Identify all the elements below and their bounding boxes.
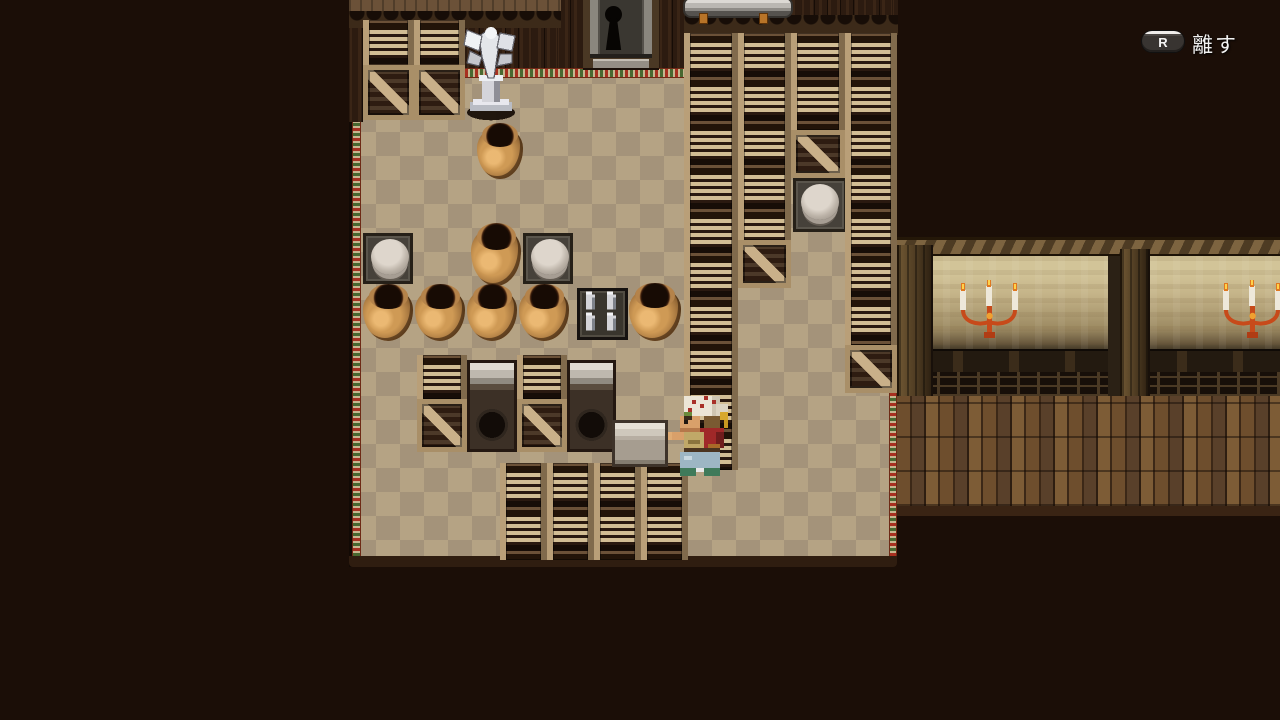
basin-leg xyxy=(699,13,708,24)
crate-diag-face xyxy=(517,399,567,453)
crate-column[interactable] xyxy=(738,33,791,240)
crate-stack[interactable] xyxy=(500,463,547,560)
crate-slat-face xyxy=(363,20,414,65)
corridor xyxy=(897,237,1280,516)
carried-crate[interactable] xyxy=(612,420,668,467)
crate-column[interactable] xyxy=(845,33,897,345)
candelabra xyxy=(952,280,1028,342)
wooden-crate[interactable] xyxy=(417,355,467,452)
silver-jugs-rack[interactable] xyxy=(577,288,628,340)
eye xyxy=(684,420,688,424)
barrel[interactable] xyxy=(523,233,573,284)
game-viewport[interactable]: R 離す xyxy=(0,0,1280,720)
hud-key-hint: R 離す xyxy=(1142,29,1272,55)
r-button-icon: R xyxy=(1142,31,1184,52)
crate-stack[interactable] xyxy=(641,463,688,560)
crate-stack[interactable] xyxy=(547,463,594,560)
wooden-crate[interactable] xyxy=(845,345,897,393)
hud-action-label: 離す xyxy=(1192,29,1238,59)
metal-basin[interactable] xyxy=(683,0,793,18)
corridor-paneling xyxy=(897,349,1280,372)
crate-diag-face xyxy=(417,399,467,453)
silver-jugs-icon xyxy=(580,291,625,337)
wall-right-shelf-edge xyxy=(684,15,898,35)
crate-diag-face xyxy=(363,65,414,120)
keyhole-door[interactable] xyxy=(583,0,659,70)
candelabra xyxy=(1215,280,1280,342)
wooden-crate[interactable] xyxy=(791,130,845,178)
carpet-trim-right xyxy=(889,393,897,556)
crate-stack[interactable] xyxy=(594,463,641,560)
door-step xyxy=(593,59,649,68)
corridor-beam xyxy=(897,237,1280,256)
wooden-crate[interactable] xyxy=(363,20,414,120)
basin-leg xyxy=(759,13,768,24)
hero-character[interactable] xyxy=(668,396,732,476)
silver-statue[interactable] xyxy=(458,24,524,126)
barrel[interactable] xyxy=(793,178,847,232)
bandana-clasp xyxy=(720,412,728,420)
corridor-pillar xyxy=(1120,249,1150,396)
metal-furnace[interactable] xyxy=(567,360,616,452)
corridor-plank-floor xyxy=(897,396,1280,506)
wooden-crate[interactable] xyxy=(517,355,567,452)
crate-slat-face xyxy=(417,355,467,399)
corridor-front-edge xyxy=(897,506,1280,516)
barrel[interactable] xyxy=(363,233,413,284)
corridor-pillar xyxy=(897,245,933,396)
metal-furnace[interactable] xyxy=(467,360,517,452)
corridor-frieze xyxy=(897,372,1280,396)
crate-slat-face xyxy=(517,355,567,399)
wall-mid xyxy=(659,0,684,68)
wooden-crate[interactable] xyxy=(738,240,791,288)
carpet-trim-left xyxy=(352,118,361,556)
crate-column[interactable] xyxy=(791,33,845,130)
corridor-recess xyxy=(1108,256,1120,396)
